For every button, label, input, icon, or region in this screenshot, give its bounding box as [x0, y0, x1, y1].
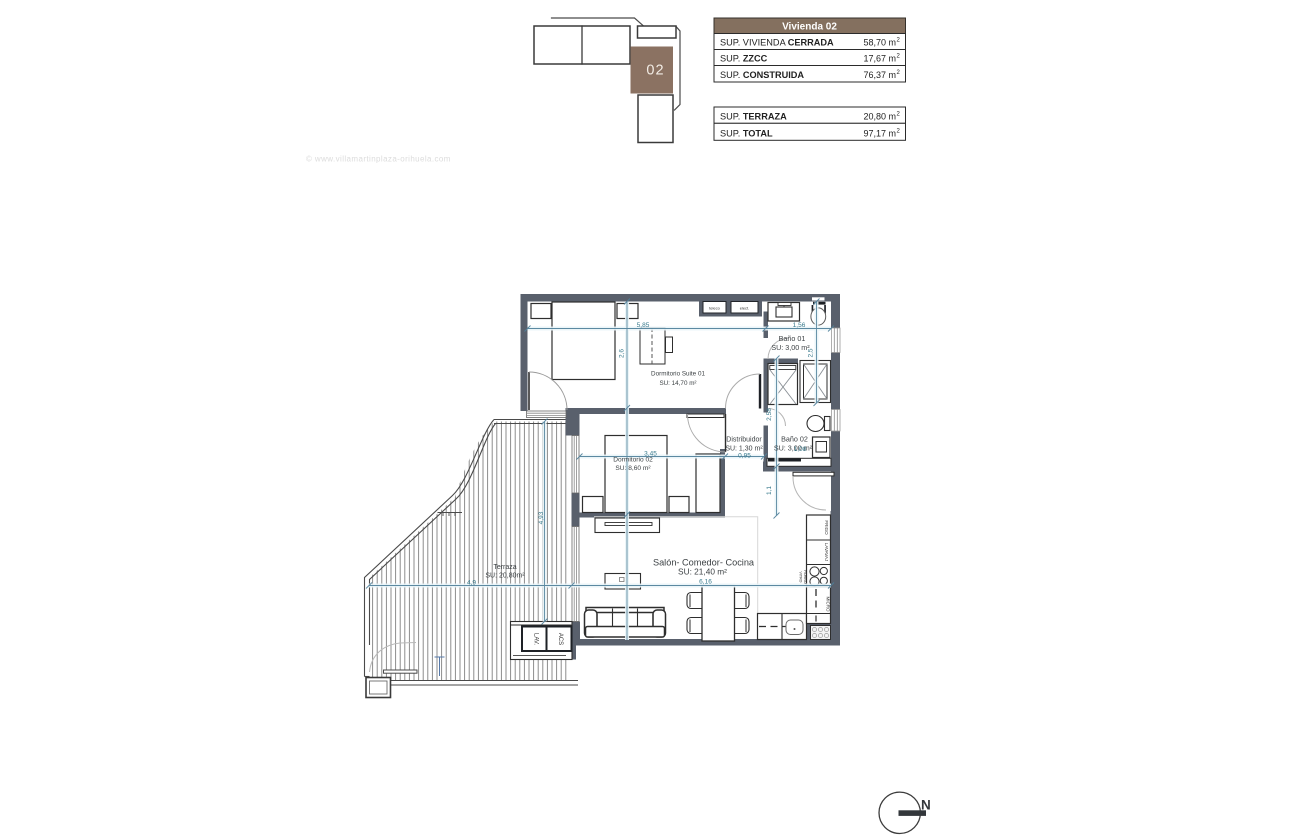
svg-text:ACS: ACS: [557, 633, 563, 645]
svg-text:SU: 21,40 m²: SU: 21,40 m²: [678, 567, 727, 577]
svg-text:Baño 02: Baño 02: [781, 435, 808, 444]
svg-text:elect.: elect.: [740, 306, 750, 311]
svg-text:20,80 m: 20,80 m: [863, 112, 896, 122]
svg-text:4,93: 4,93: [538, 511, 545, 524]
svg-text:HORNO: HORNO: [803, 570, 807, 584]
svg-text:76,37 m: 76,37 m: [863, 70, 896, 80]
svg-text:© www.villamartinplaza-orihuel: © www.villamartinplaza-orihuela.com: [306, 155, 451, 164]
svg-text:SUP. CONSTRUIDA: SUP. CONSTRUIDA: [720, 70, 804, 80]
svg-text:SU: 20,80m²: SU: 20,80m²: [485, 573, 525, 580]
svg-text:2,6: 2,6: [619, 349, 626, 358]
svg-text:LAVAVAJ: LAVAVAJ: [824, 543, 829, 561]
svg-text:3,45: 3,45: [644, 451, 657, 458]
svg-text:1,56: 1,56: [793, 322, 806, 329]
svg-text:58,70 m: 58,70 m: [863, 38, 896, 48]
svg-text:1,08: 1,08: [794, 446, 807, 453]
svg-text:VITRO: VITRO: [799, 572, 803, 583]
svg-text:Dormitorio 02: Dormitorio 02: [613, 457, 653, 464]
svg-text:SU: 14,70 m²: SU: 14,70 m²: [659, 380, 696, 387]
svg-text:Terraza: Terraza: [493, 564, 516, 571]
svg-text:2,5: 2,5: [808, 348, 815, 357]
svg-text:MICRO: MICRO: [826, 597, 831, 612]
svg-text:0,95: 0,95: [738, 453, 751, 460]
svg-text:SUP. TERRAZA: SUP. TERRAZA: [720, 112, 787, 122]
svg-text:FRIGO: FRIGO: [824, 520, 829, 535]
svg-text:Dormitorio Suite 01: Dormitorio Suite 01: [651, 371, 705, 378]
svg-text:02: 02: [646, 63, 664, 79]
svg-text:97,17 m: 97,17 m: [863, 128, 896, 138]
svg-text:SUP. VIVIENDA CERRADA: SUP. VIVIENDA CERRADA: [720, 38, 834, 48]
svg-text:SU: 8,60 m²: SU: 8,60 m²: [615, 465, 651, 472]
svg-text:17,67 m: 17,67 m: [863, 54, 896, 64]
svg-text:Vivienda 02: Vivienda 02: [782, 22, 837, 33]
svg-text:Baño 01: Baño 01: [779, 334, 806, 343]
svg-text:SU: 3,00 m²: SU: 3,00 m²: [771, 343, 810, 352]
svg-text:teleco: teleco: [709, 306, 720, 311]
svg-text:SU: 1,30 m²: SU: 1,30 m²: [725, 446, 763, 453]
svg-text:N: N: [921, 798, 931, 813]
svg-text:4,9: 4,9: [467, 580, 476, 587]
svg-text:SUP. ZZCC: SUP. ZZCC: [720, 54, 768, 64]
svg-text:SUP. TOTAL: SUP. TOTAL: [720, 128, 773, 138]
svg-text:5,85: 5,85: [637, 322, 650, 329]
svg-text:Distribuidor: Distribuidor: [726, 437, 762, 444]
svg-text:LAV.: LAV.: [533, 633, 539, 645]
svg-text:6,16: 6,16: [699, 579, 712, 586]
svg-text:1,1: 1,1: [766, 486, 773, 495]
svg-text:2,58: 2,58: [766, 408, 773, 421]
